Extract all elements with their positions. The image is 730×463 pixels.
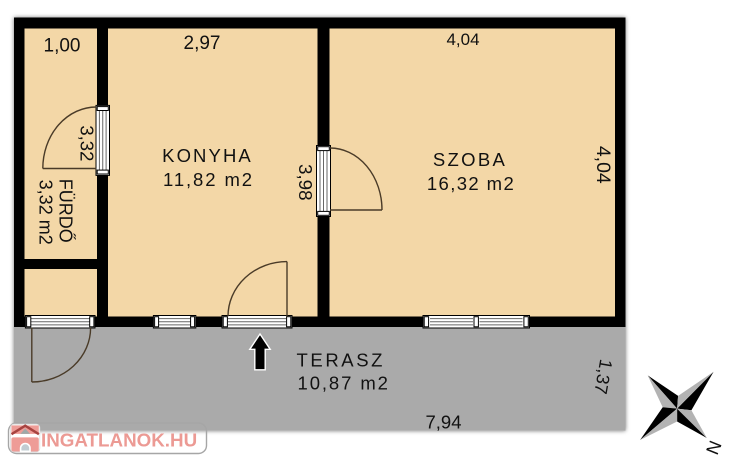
svg-text:3,32: 3,32: [76, 125, 97, 161]
svg-text:TERASZ: TERASZ: [297, 350, 386, 371]
svg-text:FÜRDŐ: FÜRDŐ: [56, 179, 77, 243]
svg-text:SZOBA: SZOBA: [433, 149, 507, 170]
svg-text:4,04: 4,04: [592, 146, 614, 184]
svg-text:3,98: 3,98: [295, 164, 316, 201]
svg-text:16,32 m2: 16,32 m2: [427, 173, 515, 194]
svg-text:KONYHA: KONYHA: [162, 145, 253, 166]
svg-text:1,00: 1,00: [44, 36, 81, 57]
svg-text:INGATLANOK.HU: INGATLANOK.HU: [41, 429, 197, 450]
svg-text:3,32 m2: 3,32 m2: [36, 180, 56, 245]
svg-text:7,94: 7,94: [425, 411, 461, 432]
svg-text:4,04: 4,04: [446, 30, 479, 49]
svg-text:2,97: 2,97: [184, 33, 221, 54]
svg-text:10,87 m2: 10,87 m2: [298, 373, 390, 394]
svg-text:11,82 m2: 11,82 m2: [163, 169, 254, 190]
